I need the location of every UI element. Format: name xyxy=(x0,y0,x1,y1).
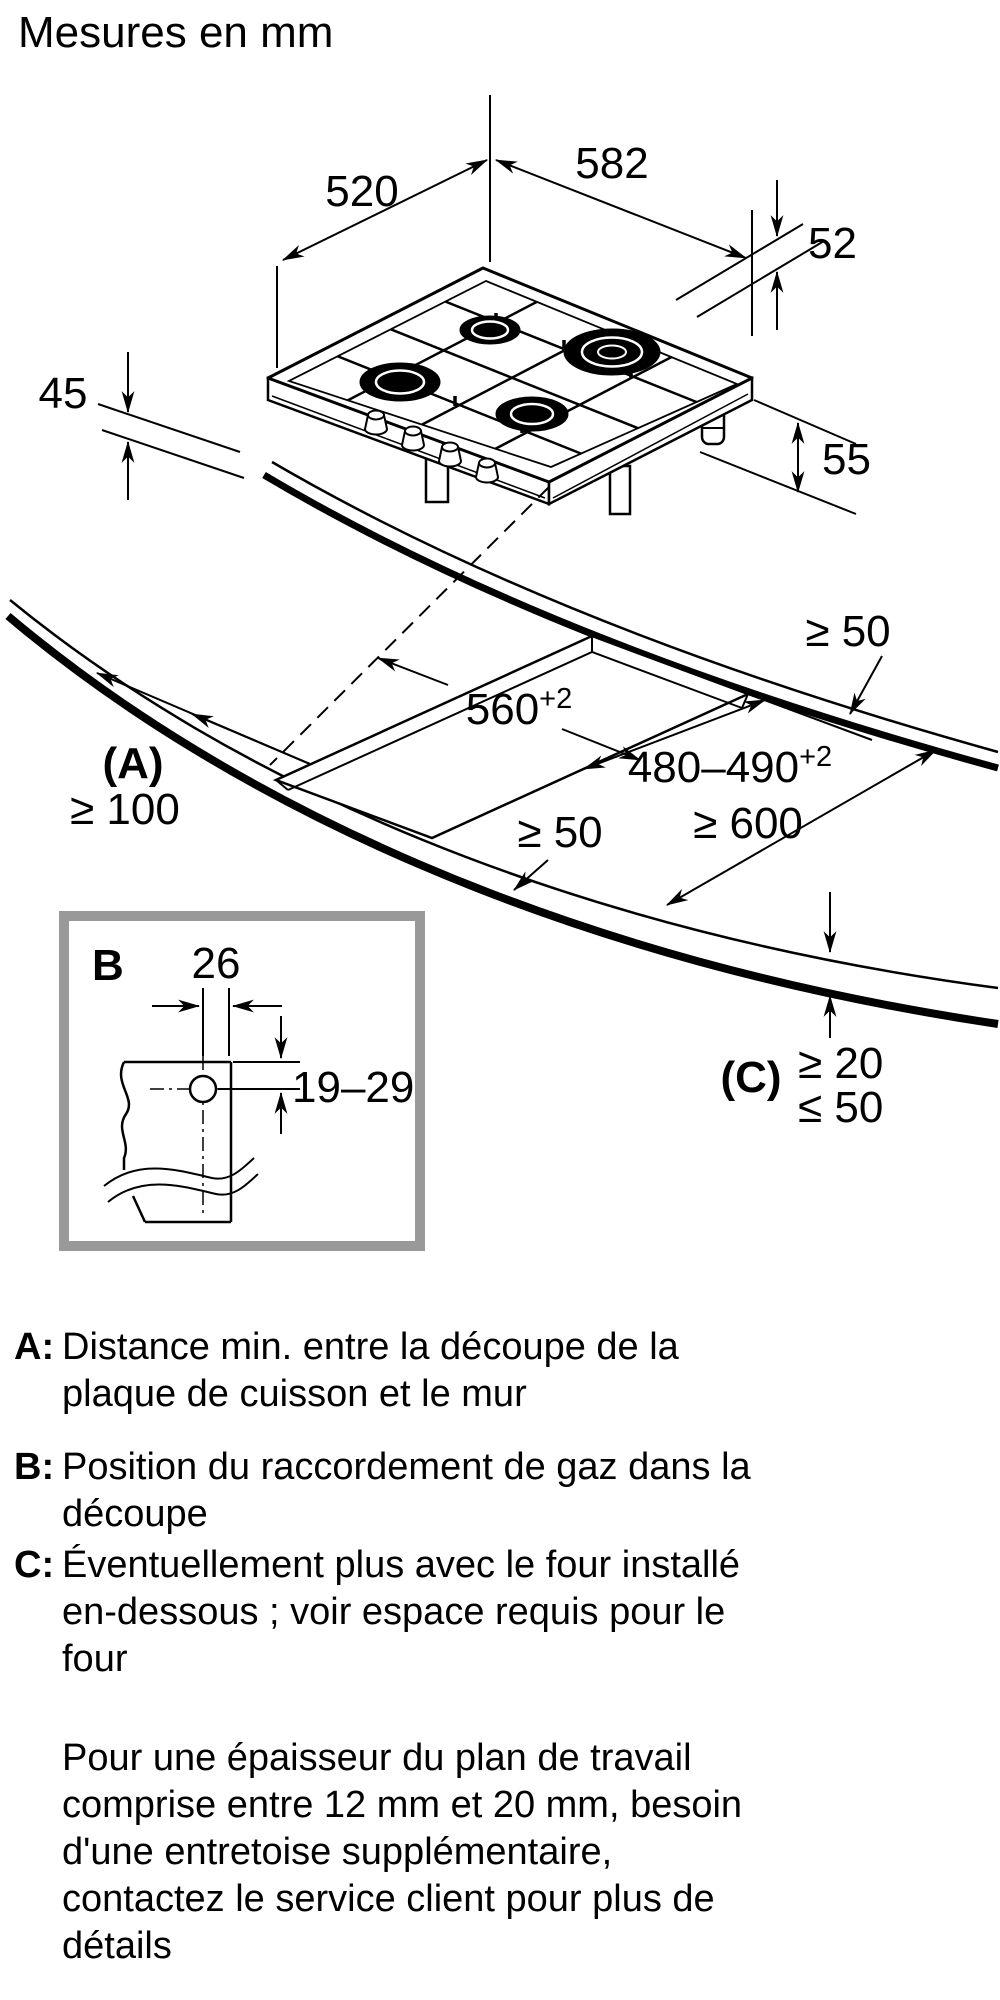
legend-text-a: Distance min. entre la découpe de laplaq… xyxy=(62,1324,989,1418)
hob-top-surface xyxy=(268,268,752,482)
hob-leg xyxy=(610,466,630,514)
dim-600: ≥ 600 xyxy=(693,799,803,848)
worktop-thickness-note: Pour une épaisseur du plan de travail co… xyxy=(62,1735,989,1970)
dim-52: 52 xyxy=(808,219,857,268)
page: Mesures en mm xyxy=(0,0,1000,2000)
burner-right-wok xyxy=(564,329,660,375)
detail-box-b: B 26 1 xyxy=(64,916,420,1246)
dim-19-29: 19–29 xyxy=(292,1063,414,1112)
legend-item-a: A: Distance min. entre la découpe de lap… xyxy=(14,1324,989,1418)
label-a: (A) xyxy=(102,739,163,788)
dim-55-group: 55 xyxy=(700,400,871,514)
dim-520: 520 xyxy=(325,167,398,216)
legend-key-b: B: xyxy=(14,1444,62,1491)
dim-55: 55 xyxy=(822,435,871,484)
dim-front-clearance-group: ≥ 50 xyxy=(514,808,603,890)
dim-c-min: ≥ 20 xyxy=(798,1039,883,1088)
legend: A: Distance min. entre la découpe de lap… xyxy=(14,1324,989,1970)
label-c: (C) xyxy=(720,1053,781,1102)
burner-left xyxy=(360,363,440,401)
legend-item-c: C: Éventuellement plus avec le four inst… xyxy=(14,1542,989,1683)
dim-480-490: 480–490+2 xyxy=(628,741,832,792)
technical-diagram: 520 582 52 45 xyxy=(0,0,1000,1300)
legend-item-b: B: Position du raccordement de gaz dans … xyxy=(14,1444,989,1538)
dim-45: 45 xyxy=(39,369,88,418)
legend-key-c: C: xyxy=(14,1542,62,1589)
dim-a-group: (A) ≥ 100 xyxy=(70,673,310,834)
dim-26: 26 xyxy=(192,939,241,988)
burner-front xyxy=(496,397,568,431)
legend-key-a: A: xyxy=(14,1324,62,1371)
detail-b-label: B xyxy=(92,941,124,990)
gas-connection-hole xyxy=(190,1076,216,1102)
dim-45-group: 45 xyxy=(39,352,244,500)
dim-a-value: ≥ 100 xyxy=(70,785,180,834)
dim-back-clearance: ≥ 50 xyxy=(805,607,890,656)
dim-front-clearance: ≥ 50 xyxy=(517,808,602,857)
legend-text-b: Position du raccordement de gaz dans lad… xyxy=(62,1444,989,1538)
dim-c-group: (C) ≥ 20 ≤ 50 xyxy=(720,892,883,1132)
dim-52-group: 52 xyxy=(676,180,857,330)
burner-back xyxy=(460,316,520,344)
dim-c-max: ≤ 50 xyxy=(798,1083,883,1132)
dim-582: 582 xyxy=(575,139,648,188)
hob-drawing xyxy=(268,268,752,514)
legend-text-c: Éventuellement plus avec le four install… xyxy=(62,1542,989,1683)
